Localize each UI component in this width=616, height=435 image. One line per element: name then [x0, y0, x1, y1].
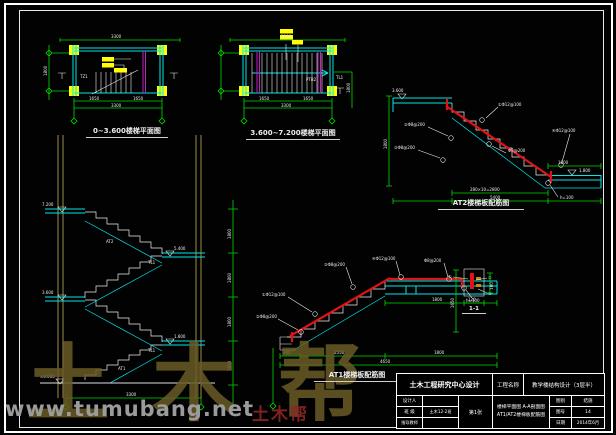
- column: [69, 45, 79, 55]
- drawing-sheet: 3300 1800 1650 1650 3300 TZ1 3300: [0, 0, 616, 435]
- at2-detail: 1800 3.600 ①Φ12@100 ②Φ8@200 ③Φ8@200 Φ8@2…: [383, 88, 601, 204]
- dim-label: 120: [468, 297, 476, 302]
- beam-label: TL1: [147, 260, 156, 265]
- detail-1-1-title: 1-1: [462, 306, 486, 314]
- leader-label: ④Φ12@100: [372, 256, 396, 261]
- dim-label: 1800: [434, 350, 445, 355]
- leader-label: ④Φ12@100: [552, 128, 576, 133]
- drawing-title-line1: 楼梯平面图 A-A剖面图: [497, 404, 545, 412]
- rebar-bar: [470, 273, 474, 289]
- dim-label: 280×10=2800: [470, 187, 500, 192]
- leader-label: ①: [448, 274, 452, 279]
- designer-value: [423, 396, 459, 407]
- leader-label: ③Φ8@200: [394, 145, 415, 150]
- stirrup: [476, 284, 481, 287]
- column: [327, 45, 337, 55]
- plan-view-1: 3300 1800 1650 1650 3300 TZ1: [43, 34, 180, 124]
- watermark-url: www.tumubang.net: [5, 397, 254, 421]
- date-value: 2014年6月: [572, 418, 604, 428]
- highlight-tag: [102, 57, 114, 62]
- plan1-title: 0~3.600楼梯平面图: [86, 126, 168, 138]
- dim-label: 1800: [227, 228, 232, 239]
- level-label: 1.800: [579, 168, 591, 173]
- dim-label: 1800: [227, 316, 232, 327]
- dim-label: 100: [489, 282, 494, 290]
- at1-title: AT1楼梯板配筋图: [314, 370, 400, 382]
- column: [327, 86, 337, 96]
- dim-label: 1800: [227, 272, 232, 283]
- level-label: 3.600: [42, 290, 54, 295]
- sheet-number: 第1张: [459, 396, 493, 428]
- dim-label: 1650: [303, 96, 314, 101]
- leader-label: ②Φ8@200: [404, 122, 425, 127]
- drawing-title-line2: AT1/AT2楼梯板配筋图: [497, 412, 545, 420]
- plan-view-2: 3300 1650 1650 3300 1800 PTB2 TL1: [218, 29, 352, 124]
- dim-label: 3300: [281, 34, 292, 39]
- member-label: TL1: [335, 75, 344, 80]
- advisor-value: [423, 418, 459, 428]
- highlight-tag: [292, 40, 303, 45]
- level-label: 7.200: [42, 202, 54, 207]
- watermark-stamp: 土木帮: [252, 400, 309, 425]
- dim-label: 3300: [111, 34, 122, 39]
- member-label: PTB2: [306, 77, 317, 82]
- dim-label: 1650: [450, 297, 455, 308]
- column: [157, 45, 167, 55]
- number-value: 14: [572, 407, 604, 418]
- date-label: 日期: [550, 418, 572, 428]
- leader-label: Φ8@200: [424, 258, 442, 263]
- member-label: TZ1: [79, 74, 88, 79]
- flight-label: AT2: [106, 239, 114, 244]
- column: [239, 45, 249, 55]
- level-label: 3.600: [392, 88, 404, 93]
- at2-title: AT2楼梯板配筋图: [438, 198, 524, 210]
- title-block: 土木工程研究中心设计 工程名称 教学楼结构设计（3层半） 设计人 班 级 土木1…: [396, 373, 605, 429]
- leader-label: ③Φ8@200: [324, 262, 345, 267]
- institute-name: 土木工程研究中心设计: [397, 374, 493, 396]
- dim-label: 1650: [133, 96, 144, 101]
- leader-label: ①Φ12@100: [262, 292, 286, 297]
- leader-label: ②Φ8@200: [256, 314, 277, 319]
- level-label: 5.400: [174, 246, 186, 251]
- dim-label: 1800: [346, 82, 351, 93]
- category-label: 图别: [550, 396, 572, 407]
- category-value: 结施: [572, 396, 604, 407]
- column: [239, 86, 249, 96]
- dim-label: 1650: [89, 96, 100, 101]
- column: [157, 86, 167, 96]
- dim-label: 3300: [281, 103, 292, 108]
- column: [69, 86, 79, 96]
- highlight-tag: [280, 29, 293, 34]
- highlight-tag: [114, 68, 127, 73]
- leader-label: ①Φ12@100: [498, 102, 522, 107]
- number-label: 图号: [550, 407, 572, 418]
- drawing-title-cell: 楼梯平面图 A-A剖面图 AT1/AT2楼梯板配筋图: [493, 396, 550, 428]
- advisor-label: 指导教师: [397, 418, 423, 428]
- project-name-value: 教学楼结构设计（3层半）: [524, 374, 604, 396]
- leader-label: Φ8@200: [508, 148, 526, 153]
- plan2-title: 3.600~7.200楼梯平面图: [246, 128, 340, 140]
- dim-label: 1800: [43, 65, 48, 76]
- project-name-label: 工程名称: [493, 374, 524, 396]
- designer-label: 设计人: [397, 396, 423, 407]
- dim-label: 1800: [432, 297, 443, 302]
- leader-label: h=100: [560, 195, 574, 200]
- highlight-tag: [102, 63, 114, 68]
- dim-label: 1800: [558, 160, 569, 165]
- dim-label: 1650: [259, 96, 270, 101]
- dim-label: 1800: [383, 138, 388, 149]
- class-label: 班 级: [397, 407, 423, 418]
- dim-label: 3300: [111, 103, 122, 108]
- class-value: 土木12-2班: [423, 407, 459, 418]
